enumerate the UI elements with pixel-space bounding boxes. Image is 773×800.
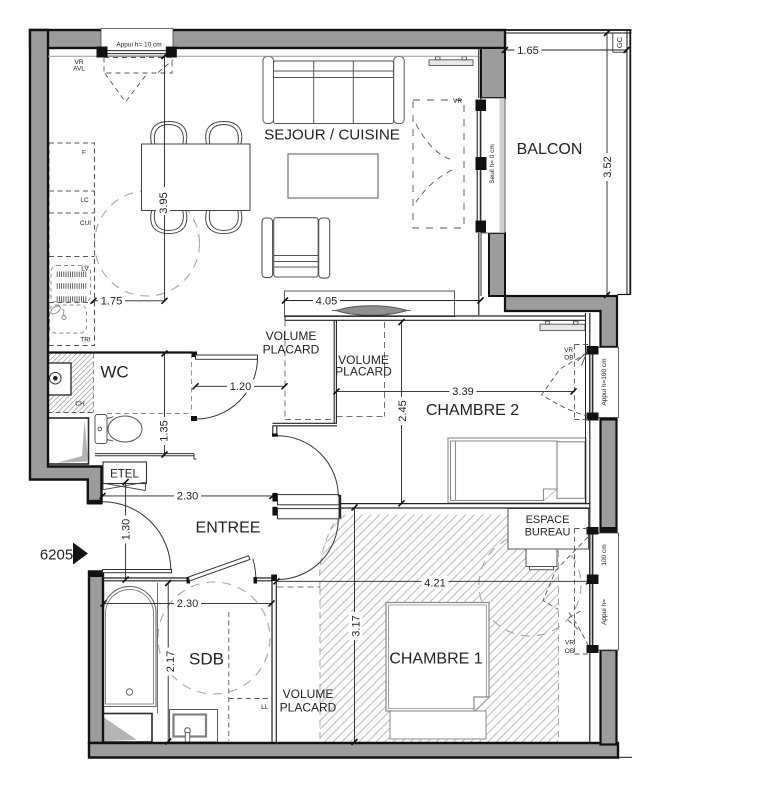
- svg-text:2.30: 2.30: [177, 598, 198, 610]
- svg-text:ESPACE: ESPACE: [526, 514, 570, 526]
- svg-text:SDB: SDB: [189, 649, 224, 668]
- svg-text:TRI: TRI: [80, 337, 91, 344]
- svg-text:4.21: 4.21: [424, 577, 445, 589]
- svg-text:2.17: 2.17: [165, 651, 177, 672]
- svg-text:OB: OB: [565, 648, 574, 655]
- svg-text:VR: VR: [564, 347, 573, 354]
- svg-text:1.75: 1.75: [101, 296, 122, 308]
- svg-text:100 cm: 100 cm: [601, 544, 608, 565]
- svg-text:Seuil h= 0 cm: Seuil h= 0 cm: [489, 144, 496, 184]
- svg-text:2.30: 2.30: [177, 491, 198, 503]
- svg-text:LL: LL: [261, 704, 269, 711]
- svg-text:VR: VR: [565, 639, 574, 646]
- svg-text:PLACARD: PLACARD: [263, 343, 320, 357]
- svg-text:CUI: CUI: [80, 220, 91, 227]
- svg-text:3.39: 3.39: [452, 386, 473, 398]
- svg-text:3.17: 3.17: [350, 615, 362, 636]
- svg-text:Appui h=: Appui h=: [601, 599, 608, 625]
- svg-text:WC: WC: [100, 362, 128, 381]
- svg-text:ENTREE: ENTREE: [196, 520, 261, 537]
- svg-text:CH: CH: [75, 400, 85, 407]
- svg-text:BUREAU: BUREAU: [525, 526, 571, 538]
- svg-text:PLACARD: PLACARD: [335, 365, 392, 379]
- svg-text:2.45: 2.45: [397, 400, 409, 421]
- svg-text:VR: VR: [453, 98, 462, 105]
- svg-text:GC: GC: [615, 36, 624, 48]
- svg-text:3.95: 3.95: [158, 192, 170, 213]
- svg-text:4.05: 4.05: [316, 295, 337, 307]
- svg-text:VOLUME: VOLUME: [266, 329, 317, 343]
- svg-text:AVL: AVL: [73, 66, 85, 73]
- svg-text:6205: 6205: [40, 546, 73, 563]
- svg-text:Appui h= 10 cm: Appui h= 10 cm: [116, 41, 161, 48]
- svg-text:1.35: 1.35: [158, 420, 170, 441]
- svg-text:BALCON: BALCON: [517, 141, 583, 158]
- svg-text:ETEL: ETEL: [110, 469, 139, 481]
- svg-text:Appui h=100 cm: Appui h=100 cm: [601, 358, 608, 405]
- svg-text:CHAMBRE 2: CHAMBRE 2: [426, 402, 519, 419]
- svg-text:VOLUME: VOLUME: [283, 687, 334, 701]
- svg-text:1.30: 1.30: [120, 519, 132, 540]
- svg-text:F: F: [82, 149, 86, 156]
- svg-text:1.20: 1.20: [230, 381, 251, 393]
- svg-text:1.65: 1.65: [517, 45, 538, 57]
- svg-text:LV: LV: [81, 266, 89, 273]
- svg-text:SEJOUR / CUISINE: SEJOUR / CUISINE: [264, 126, 400, 143]
- svg-text:OB: OB: [564, 354, 573, 361]
- svg-text:PLACARD: PLACARD: [280, 701, 337, 715]
- svg-text:CHAMBRE 1: CHAMBRE 1: [389, 651, 482, 668]
- svg-text:LC: LC: [80, 197, 89, 204]
- svg-text:3.52: 3.52: [602, 156, 614, 177]
